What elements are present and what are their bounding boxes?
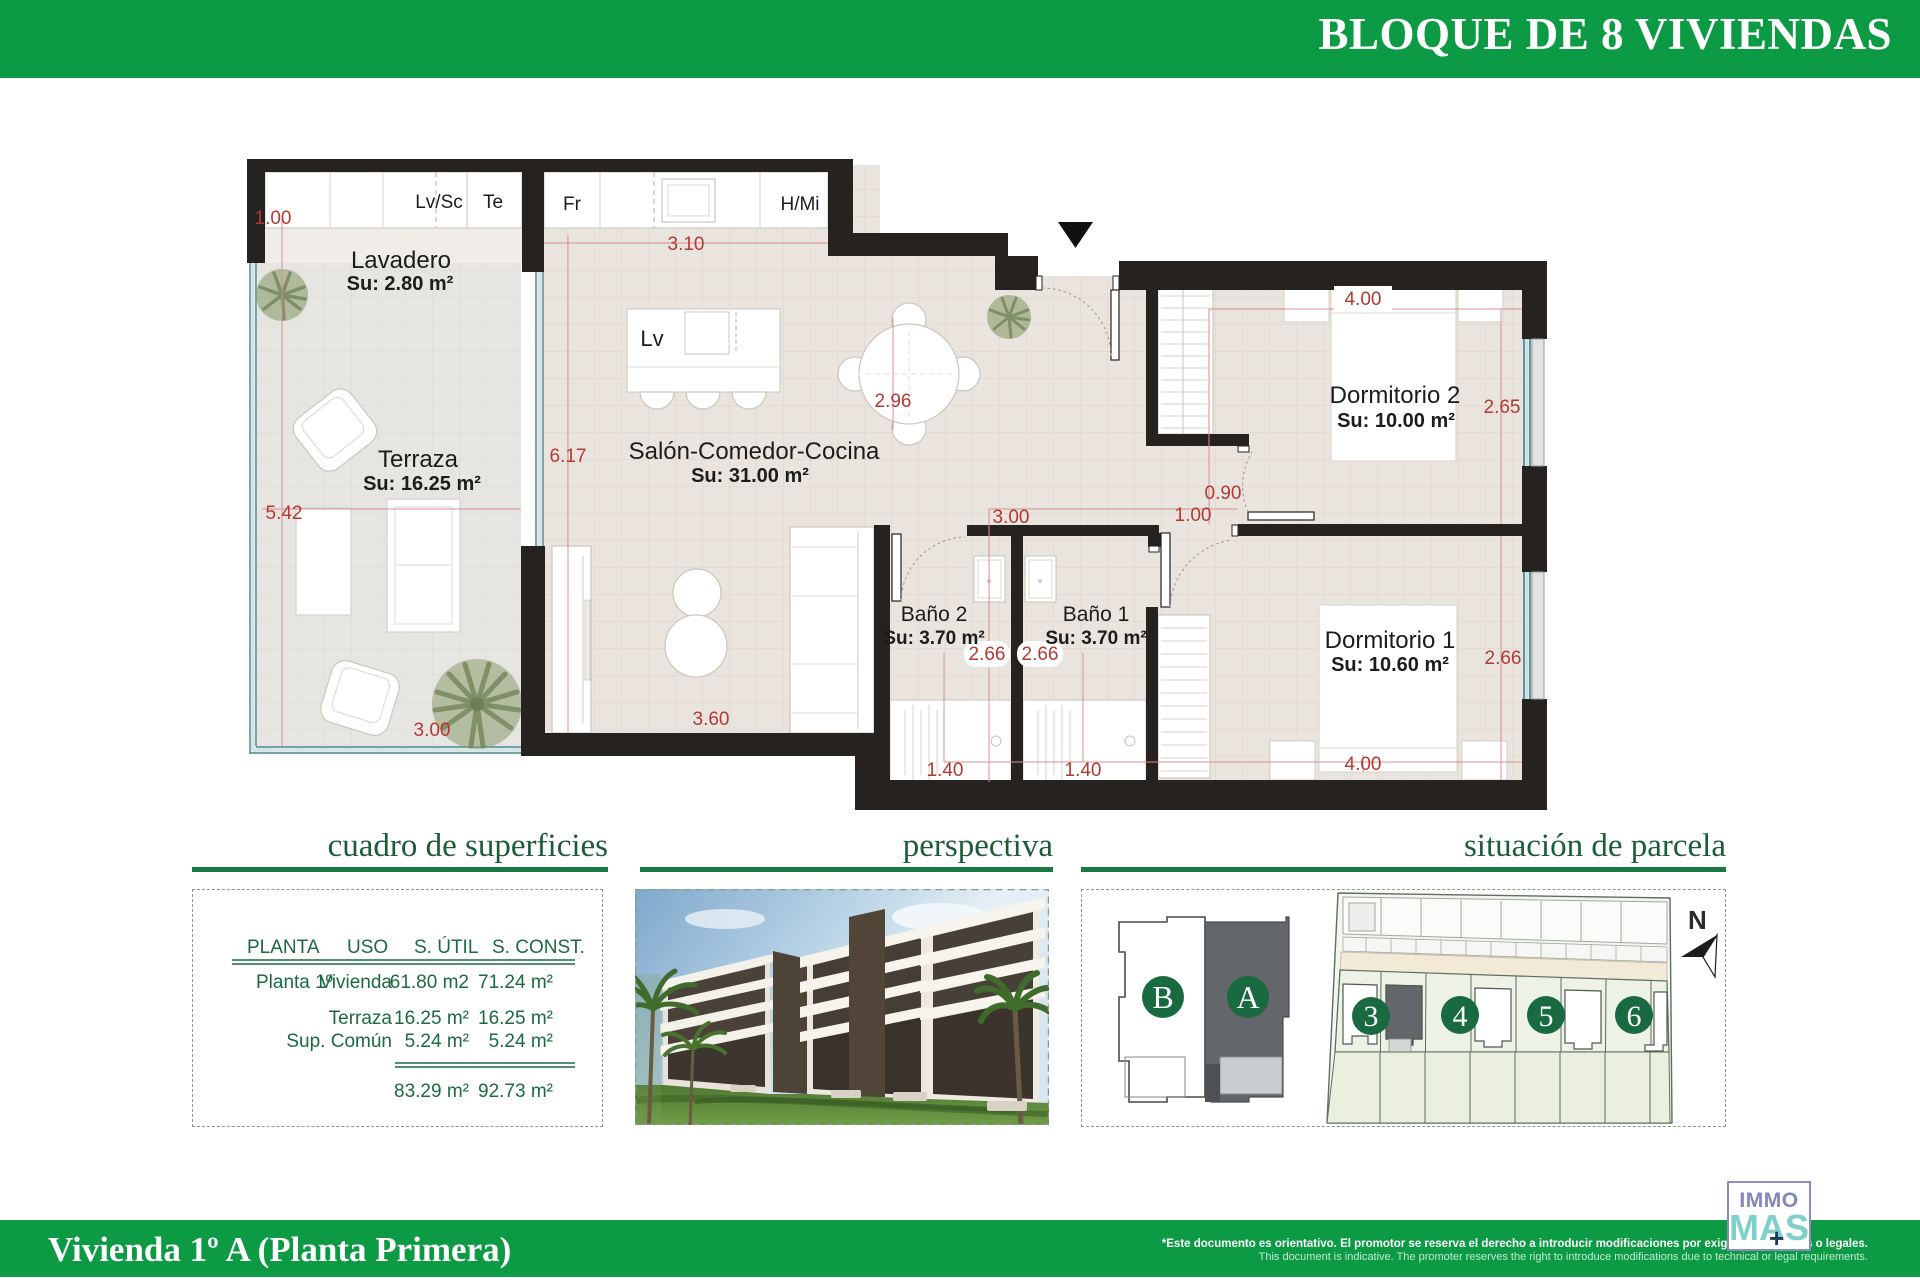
- svg-text:S. ÚTIL: S. ÚTIL: [414, 936, 478, 958]
- svg-text:Su: 31.00 m²: Su: 31.00 m²: [691, 465, 809, 487]
- svg-text:Baño 2: Baño 2: [901, 603, 968, 626]
- svg-text:92.73 m²: 92.73 m²: [478, 1081, 553, 1102]
- svg-text:4.00: 4.00: [1345, 289, 1382, 310]
- svg-text:H/Mi: H/Mi: [780, 194, 819, 215]
- svg-text:4.00: 4.00: [1345, 754, 1382, 775]
- svg-text:Te: Te: [483, 192, 503, 213]
- svg-text:Su: 2.80 m²: Su: 2.80 m²: [347, 273, 454, 295]
- svg-text:71.24 m²: 71.24 m²: [478, 972, 553, 993]
- svg-text:Sup. Común: Sup. Común: [286, 1031, 392, 1052]
- svg-text:5: 5: [1539, 1000, 1554, 1033]
- svg-text:Terraza: Terraza: [329, 1008, 393, 1029]
- svg-text:6: 6: [1627, 1000, 1642, 1033]
- svg-text:5.24 m²: 5.24 m²: [405, 1031, 469, 1052]
- svg-text:Salón-Comedor-Cocina: Salón-Comedor-Cocina: [629, 438, 880, 465]
- svg-text:61.80 m2: 61.80 m2: [390, 972, 469, 993]
- svg-text:Lv: Lv: [640, 326, 663, 351]
- svg-text:2.96: 2.96: [875, 391, 912, 412]
- svg-text:2.65: 2.65: [1484, 397, 1521, 418]
- svg-text:Dormitorio 1: Dormitorio 1: [1325, 627, 1456, 654]
- svg-text:PLANTA: PLANTA: [247, 937, 320, 958]
- svg-text:Lv/Sc: Lv/Sc: [415, 192, 463, 213]
- svg-text:Su: 10.00 m²: Su: 10.00 m²: [1337, 410, 1455, 432]
- svg-text:3.60: 3.60: [693, 709, 730, 730]
- svg-text:6.17: 6.17: [550, 446, 587, 467]
- svg-text:5.42: 5.42: [266, 503, 303, 524]
- svg-text:0.90: 0.90: [1205, 483, 1242, 504]
- svg-text:Lavadero: Lavadero: [351, 247, 451, 274]
- svg-text:USO: USO: [347, 937, 388, 958]
- svg-text:N: N: [1688, 905, 1707, 935]
- svg-text:S. CONST.: S. CONST.: [492, 937, 585, 958]
- svg-text:Fr: Fr: [563, 194, 582, 215]
- svg-text:3.00: 3.00: [414, 720, 451, 741]
- svg-text:2.66: 2.66: [1485, 648, 1522, 669]
- svg-text:4: 4: [1453, 1000, 1468, 1033]
- svg-text:Baño 1: Baño 1: [1063, 603, 1130, 626]
- svg-text:Terraza: Terraza: [378, 446, 459, 473]
- svg-text:3.10: 3.10: [668, 234, 705, 255]
- svg-text:1.40: 1.40: [1065, 760, 1102, 781]
- svg-text:Su: 3.70 m²: Su: 3.70 m²: [883, 628, 984, 649]
- svg-text:3.00: 3.00: [993, 507, 1030, 528]
- svg-text:1.00: 1.00: [255, 208, 292, 229]
- svg-text:Vivienda: Vivienda: [319, 972, 392, 993]
- svg-text:B: B: [1152, 979, 1173, 1015]
- svg-text:Su: 10.60 m²: Su: 10.60 m²: [1331, 654, 1449, 676]
- svg-text:Su: 16.25 m²: Su: 16.25 m²: [363, 473, 481, 495]
- svg-text:5.24 m²: 5.24 m²: [489, 1031, 553, 1052]
- svg-text:83.29 m²: 83.29 m²: [394, 1081, 469, 1102]
- svg-text:1.40: 1.40: [927, 760, 964, 781]
- svg-text:16.25 m²: 16.25 m²: [394, 1008, 469, 1029]
- svg-text:Dormitorio 2: Dormitorio 2: [1330, 382, 1461, 409]
- svg-text:1.00: 1.00: [1175, 505, 1212, 526]
- svg-text:Su: 3.70 m²: Su: 3.70 m²: [1045, 628, 1146, 649]
- svg-text:16.25 m²: 16.25 m²: [478, 1008, 553, 1029]
- svg-text:3: 3: [1364, 1000, 1379, 1033]
- svg-text:A: A: [1236, 979, 1259, 1015]
